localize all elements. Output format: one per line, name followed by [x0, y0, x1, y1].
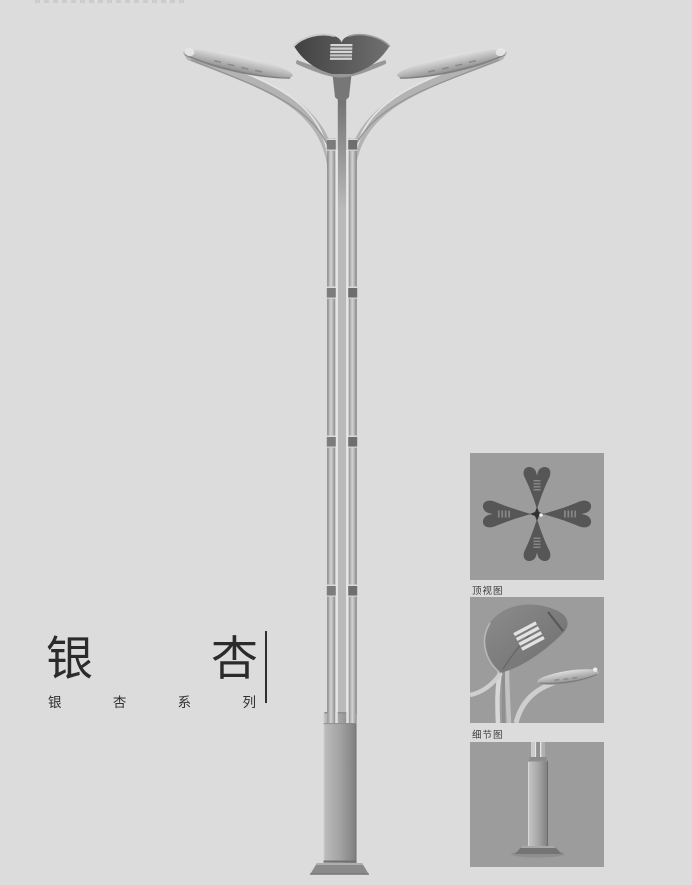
base-view-drawing [470, 742, 604, 867]
title-char-1: 银 [46, 634, 93, 683]
lamp-base [310, 712, 369, 875]
title-divider-line [265, 631, 267, 703]
detail-view-image [470, 597, 604, 723]
series-char-2: 杏 [113, 691, 127, 711]
title-char-2: 杏 [211, 634, 258, 683]
top-view-caption: 顶视图 [472, 583, 504, 597]
top-view-image [470, 453, 604, 580]
series-subtitle: 银 杏 系 列 [48, 691, 256, 711]
detail-view-drawing [470, 597, 604, 723]
product-title: 银 杏 [46, 634, 258, 686]
pole-center-tube [338, 64, 346, 714]
top-view-hub [530, 507, 544, 521]
pole-groove-left [335, 150, 338, 714]
lamp-crown [294, 35, 390, 101]
series-char-3: 系 [178, 691, 192, 711]
series-char-4: 列 [242, 691, 256, 711]
pole-groove-right [346, 150, 349, 714]
page-stage: 银 杏 银 杏 系 列 [0, 0, 692, 885]
top-view-drawing [470, 453, 604, 580]
detail-view-caption: 细节图 [472, 727, 504, 741]
series-char-1: 银 [48, 691, 62, 711]
base-view-image [470, 742, 604, 867]
catalog-page: { "colors": { "page_bg": "#dcdcdc", "pan… [0, 0, 692, 885]
